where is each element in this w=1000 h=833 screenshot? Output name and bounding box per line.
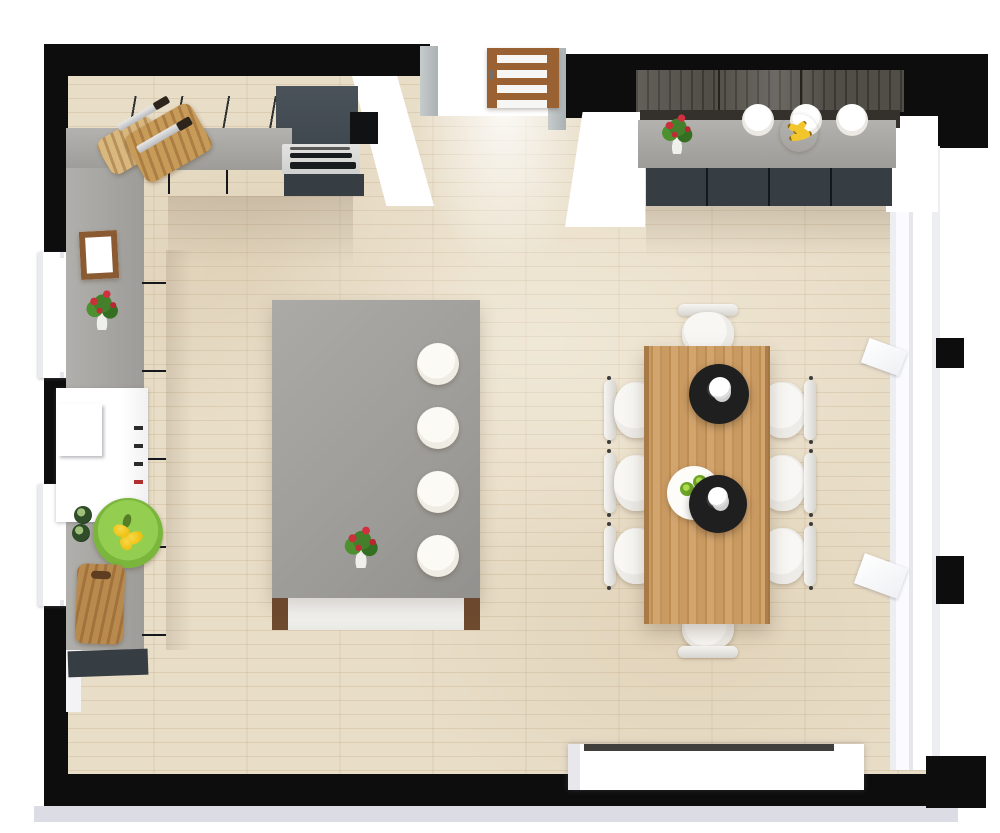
door-handle (489, 70, 494, 79)
stool-4-seat (417, 535, 459, 577)
shelf-plate-3[interactable] (836, 104, 868, 136)
cutting-board-lower-left[interactable] (75, 563, 126, 645)
oven-vent-unit[interactable] (282, 144, 360, 174)
range-box (58, 404, 102, 456)
wall-right-segment-2 (936, 556, 964, 604)
base-cabinet-under-vent (284, 174, 364, 196)
chair-leg (607, 449, 611, 453)
shelf-plate-1[interactable] (742, 104, 774, 136)
stool-2[interactable] (417, 407, 459, 449)
console-side-face (568, 744, 580, 790)
backsplash-seam-1 (718, 70, 720, 112)
exterior-trim-bottom (34, 806, 958, 822)
stool-3[interactable] (417, 471, 459, 513)
chair-leg (809, 586, 813, 590)
green-bottle-1[interactable] (74, 506, 92, 524)
floor-shadow-left-counter (166, 250, 192, 650)
chair-leg (809, 513, 813, 517)
pendant-lamp-1[interactable] (689, 364, 749, 424)
chair-leg (607, 376, 611, 380)
pendant-2-bulb (708, 487, 728, 507)
pendant-lamp-2[interactable] (689, 475, 747, 533)
chair-leg (607, 586, 611, 590)
chair-leg (809, 522, 813, 526)
chair-backrest (804, 453, 816, 513)
range-control-4 (134, 480, 143, 484)
white-console-sideboard[interactable] (568, 744, 864, 790)
chair-leg (607, 513, 611, 517)
floor-light-sheen (415, 105, 595, 270)
entry-door-open[interactable] (487, 48, 559, 108)
wood-framed-tray[interactable] (79, 230, 119, 280)
banana-plate[interactable] (780, 114, 818, 152)
stool-3-seat (417, 471, 459, 513)
base-cabinets-right-run[interactable] (646, 168, 892, 206)
green-bottle-2[interactable] (72, 524, 90, 542)
stool-2-seat (417, 407, 459, 449)
flower-pot-island[interactable] (340, 520, 382, 568)
base-cabinet-left-end (68, 649, 149, 678)
pendant-1-bulb (709, 377, 731, 399)
dark-wood-backsplash[interactable] (636, 70, 904, 112)
wall-corner-bottom-right (926, 756, 986, 808)
range-control-2 (134, 444, 143, 448)
stool-4[interactable] (417, 535, 459, 577)
vent-slot-3 (290, 162, 356, 169)
stool-1-seat (417, 343, 459, 385)
flower-pot-right-counter[interactable] (658, 108, 696, 154)
island-front-panel (288, 596, 464, 630)
vent-slot-1 (290, 147, 350, 150)
door-jamb-left (420, 46, 438, 116)
chair-leg (607, 522, 611, 526)
chair-leg (809, 449, 813, 453)
chair-backrest (804, 526, 816, 586)
range-control-1 (134, 426, 143, 430)
chair-leg (809, 440, 813, 444)
knife-1-handle (152, 95, 170, 110)
console-back-edge (584, 744, 834, 751)
floor-shadow-top-left (168, 196, 353, 266)
kitchen-floor-plan (0, 0, 1000, 833)
cooktop-dark-inset (350, 112, 378, 144)
wall-left-segment-3 (44, 602, 68, 778)
wall-left-segment-1 (44, 44, 68, 258)
window-right-band (890, 146, 940, 770)
range-control-3 (134, 462, 143, 466)
cutting-board-handle-hole (91, 571, 111, 580)
chair-backrest (804, 380, 816, 440)
floor-shadow-top-right (646, 206, 892, 258)
chair-leg (809, 376, 813, 380)
stool-1[interactable] (417, 343, 459, 385)
chair-backrest (678, 646, 738, 658)
wall-right-segment-1 (936, 338, 964, 368)
flower-pot-left-counter[interactable] (82, 284, 122, 330)
vent-slot-2 (290, 153, 352, 158)
green-plate-with-lemons[interactable] (93, 498, 163, 568)
chair-leg (607, 440, 611, 444)
